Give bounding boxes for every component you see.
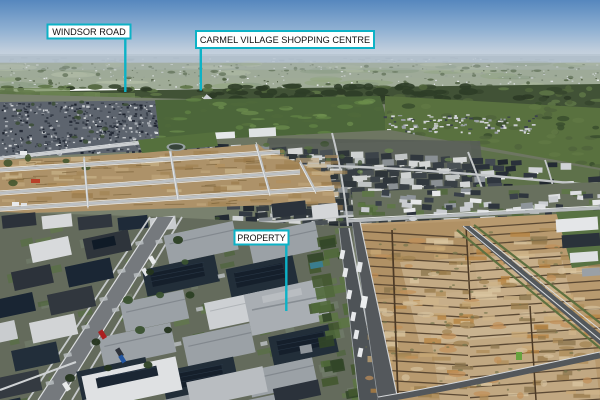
svg-text:PROPERTY: PROPERTY [237, 233, 285, 243]
svg-text:WINDSOR ROAD: WINDSOR ROAD [52, 27, 126, 37]
svg-text:CARMEL VILLAGE SHOPPING CENTRE: CARMEL VILLAGE SHOPPING CENTRE [200, 35, 370, 45]
